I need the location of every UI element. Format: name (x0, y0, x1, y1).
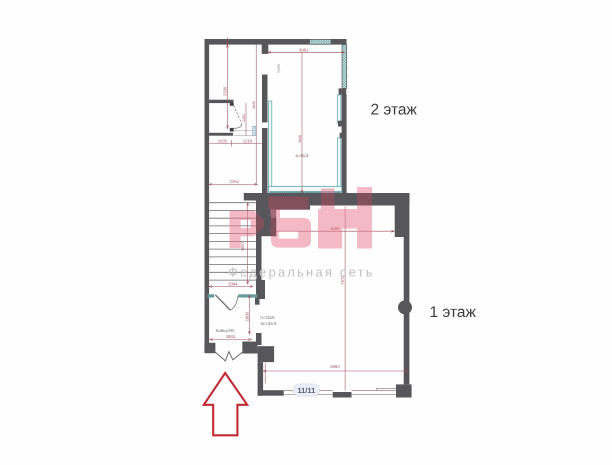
svg-text:3081: 3081 (299, 47, 309, 52)
svg-text:6060: 6060 (330, 364, 340, 369)
svg-text:труба: труба (277, 64, 281, 73)
svg-text:Sобщ=90: Sобщ=90 (216, 328, 235, 333)
svg-text:1800: 1800 (244, 311, 249, 321)
svg-text:1461: 1461 (242, 114, 246, 122)
svg-text:2254: 2254 (230, 179, 240, 184)
svg-text:4846: 4846 (298, 135, 302, 143)
svg-text:2 этаж: 2 этаж (371, 102, 418, 119)
svg-text:11/11: 11/11 (297, 386, 315, 395)
svg-text:h=3115: h=3115 (260, 315, 275, 320)
svg-text:3847: 3847 (240, 241, 245, 251)
svg-text:1 этаж: 1 этаж (430, 304, 477, 321)
svg-text:2064: 2064 (228, 281, 238, 286)
svg-text:1219: 1219 (243, 139, 253, 144)
svg-text:2330: 2330 (222, 86, 227, 96)
svg-text:Федеральная сеть: Федеральная сеть (228, 264, 375, 279)
svg-text:s=13,3: s=13,3 (296, 153, 309, 158)
svg-text:1035: 1035 (218, 138, 228, 143)
svg-text:4846: 4846 (252, 101, 256, 109)
svg-text:Sп=46,5: Sп=46,5 (260, 321, 277, 326)
svg-text:1853: 1853 (226, 334, 236, 339)
